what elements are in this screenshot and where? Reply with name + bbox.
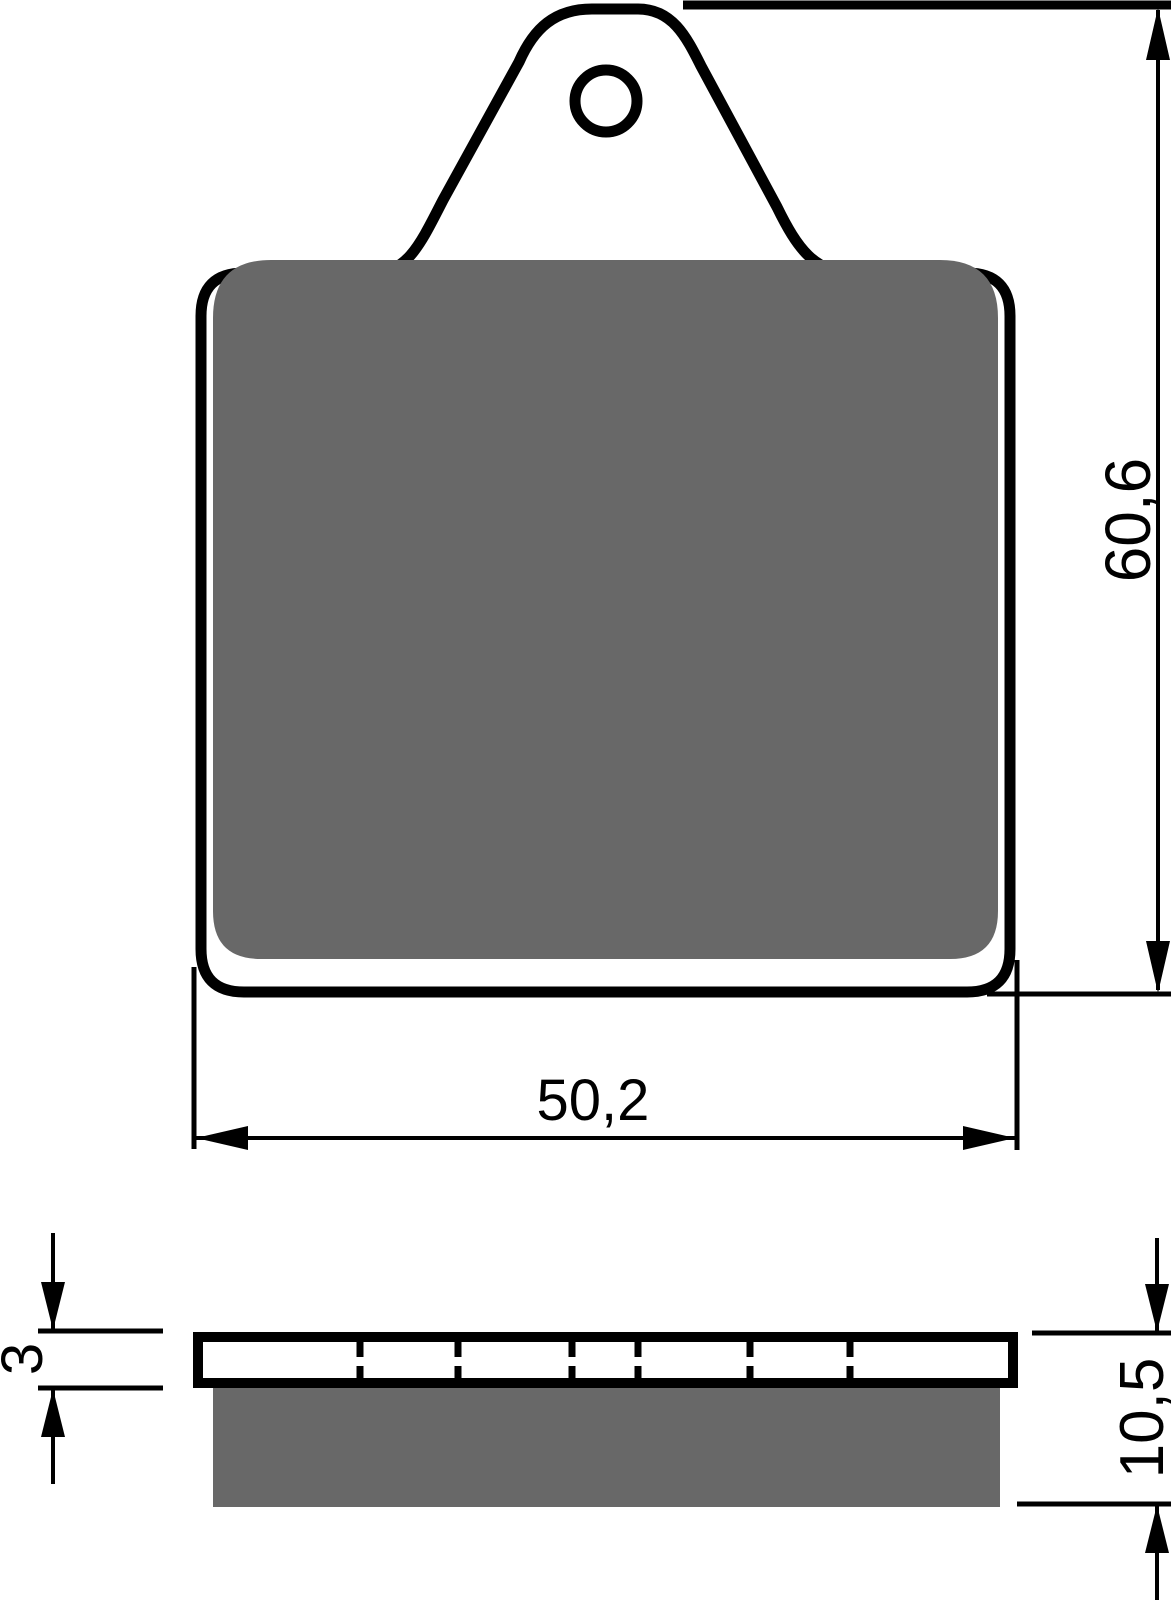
drawing-canvas: 60,6 50,2 xyxy=(0,0,1171,1600)
dim-plate-thickness: 3 xyxy=(0,1233,163,1484)
arrowhead-up-icon xyxy=(1145,1505,1169,1553)
friction-material xyxy=(213,260,998,959)
dim-width-label: 50,2 xyxy=(537,1068,650,1133)
arrowhead-left-icon xyxy=(196,1126,248,1150)
dim-height-label: 60,6 xyxy=(1092,458,1164,583)
friction-material-side xyxy=(213,1388,1000,1507)
arrowhead-down-icon xyxy=(41,1282,65,1330)
arrowhead-down-icon xyxy=(1146,941,1170,993)
arrowhead-right-icon xyxy=(963,1126,1015,1150)
arrowhead-up-icon xyxy=(1146,8,1170,60)
front-view xyxy=(201,9,1010,992)
technical-drawing: 60,6 50,2 xyxy=(0,0,1171,1600)
arrowhead-down-icon xyxy=(1145,1284,1169,1332)
dim-total-thickness-label: 10,5 xyxy=(1108,1358,1171,1479)
side-view xyxy=(198,1337,1013,1507)
dim-total-thickness: 10,5 xyxy=(1017,1238,1171,1600)
dim-plate-thickness-label: 3 xyxy=(0,1343,55,1375)
mounting-hole xyxy=(575,70,637,132)
backing-plate-side xyxy=(198,1337,1013,1383)
arrowhead-up-icon xyxy=(41,1389,65,1437)
